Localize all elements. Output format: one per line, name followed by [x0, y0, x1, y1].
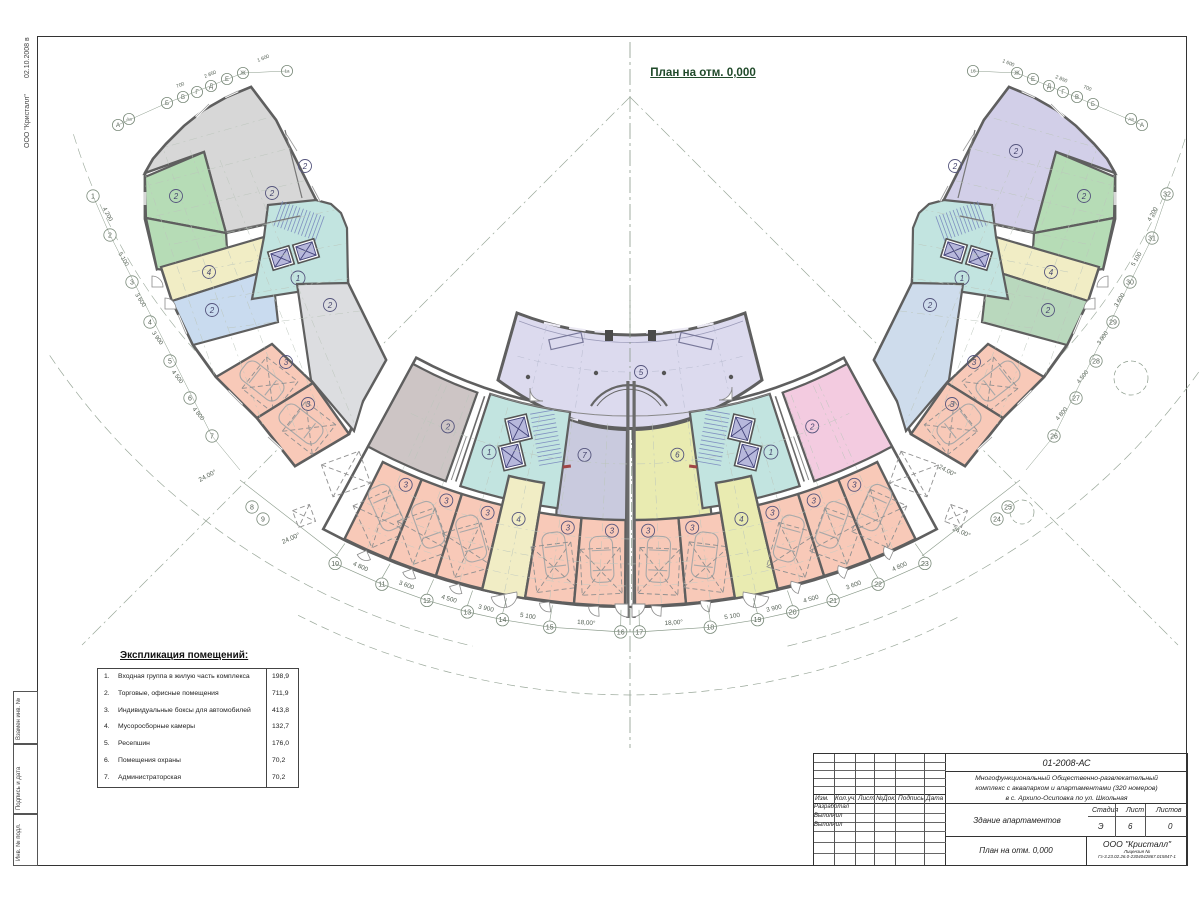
svg-text:16: 16 — [617, 630, 625, 637]
svg-text:4: 4 — [739, 515, 744, 524]
svg-text:3: 3 — [852, 481, 857, 490]
svg-text:29: 29 — [1109, 320, 1117, 327]
svg-text:3: 3 — [403, 481, 408, 490]
svg-text:1: 1 — [960, 274, 964, 283]
svg-text:700: 700 — [1082, 84, 1092, 93]
svg-text:5: 5 — [639, 368, 644, 377]
svg-text:1 600: 1 600 — [257, 54, 271, 64]
svg-text:18,00°: 18,00° — [577, 618, 596, 627]
svg-text:Ж: Ж — [240, 71, 246, 77]
svg-text:А: А — [1140, 123, 1144, 129]
svg-text:2: 2 — [269, 189, 275, 198]
svg-text:5: 5 — [168, 359, 172, 366]
svg-text:30: 30 — [1126, 280, 1134, 287]
svg-text:2: 2 — [1081, 192, 1087, 201]
svg-text:5 100: 5 100 — [724, 612, 741, 621]
svg-text:7: 7 — [582, 451, 587, 460]
svg-text:2: 2 — [209, 306, 215, 315]
svg-text:3: 3 — [972, 358, 977, 367]
svg-text:4 500: 4 500 — [440, 594, 458, 605]
svg-text:17: 17 — [635, 630, 643, 637]
svg-text:1: 1 — [487, 448, 491, 457]
svg-text:4 800: 4 800 — [191, 407, 206, 423]
svg-text:3: 3 — [485, 509, 490, 518]
svg-text:2: 2 — [952, 162, 958, 171]
svg-text:5 100: 5 100 — [117, 251, 130, 268]
svg-text:3 900: 3 900 — [766, 603, 783, 613]
svg-text:2: 2 — [108, 233, 112, 240]
svg-text:3: 3 — [811, 496, 816, 505]
svg-text:18: 18 — [706, 625, 714, 632]
svg-text:Е: Е — [225, 77, 229, 83]
svg-text:6: 6 — [188, 396, 192, 403]
svg-text:5 100: 5 100 — [520, 612, 537, 621]
svg-text:19: 19 — [754, 617, 762, 624]
svg-text:Б: Б — [165, 101, 169, 107]
svg-text:15: 15 — [546, 625, 554, 632]
svg-text:2: 2 — [173, 192, 179, 201]
svg-text:Аа: Аа — [1128, 117, 1134, 122]
svg-text:3: 3 — [610, 527, 615, 536]
svg-text:4 500: 4 500 — [170, 370, 184, 386]
svg-text:Б: Б — [1091, 102, 1095, 108]
svg-text:1: 1 — [296, 274, 300, 283]
svg-text:4 500: 4 500 — [802, 594, 820, 605]
svg-text:2: 2 — [1013, 147, 1019, 156]
svg-text:3: 3 — [770, 509, 775, 518]
svg-text:4 200: 4 200 — [1147, 206, 1160, 223]
svg-text:2: 2 — [927, 301, 933, 310]
svg-text:Д: Д — [1047, 84, 1051, 90]
svg-text:6: 6 — [675, 451, 680, 460]
svg-text:24.00°: 24.00° — [281, 531, 302, 546]
svg-text:13: 13 — [463, 609, 471, 616]
svg-text:2: 2 — [302, 162, 308, 171]
svg-text:3 900: 3 900 — [1096, 330, 1110, 346]
svg-text:24: 24 — [993, 517, 1001, 524]
svg-text:1 600: 1 600 — [1001, 58, 1015, 68]
svg-text:7: 7 — [210, 434, 214, 441]
svg-text:20: 20 — [789, 609, 797, 616]
svg-text:4: 4 — [207, 268, 212, 277]
svg-text:4: 4 — [148, 320, 152, 327]
svg-text:2: 2 — [1045, 306, 1051, 315]
svg-text:3 900: 3 900 — [477, 603, 494, 613]
svg-text:700: 700 — [176, 81, 186, 90]
svg-text:3 900: 3 900 — [150, 331, 164, 347]
svg-text:2: 2 — [327, 301, 333, 310]
svg-text:3 600: 3 600 — [1114, 292, 1127, 308]
svg-text:8: 8 — [250, 505, 254, 512]
svg-text:24.00°: 24.00° — [197, 468, 218, 484]
svg-text:3: 3 — [130, 280, 134, 287]
svg-text:31: 31 — [1148, 236, 1156, 243]
svg-text:28: 28 — [1092, 359, 1100, 366]
svg-text:3 600: 3 600 — [845, 579, 863, 591]
svg-text:18,00°: 18,00° — [664, 618, 683, 627]
svg-text:1: 1 — [769, 448, 773, 457]
svg-text:3 600: 3 600 — [398, 580, 416, 592]
svg-text:4 200: 4 200 — [101, 206, 114, 223]
svg-text:24.00°: 24.00° — [937, 463, 958, 479]
svg-text:3: 3 — [690, 524, 695, 533]
svg-text:2: 2 — [809, 422, 815, 431]
svg-text:14: 14 — [499, 617, 507, 624]
svg-text:2: 2 — [445, 422, 451, 431]
svg-text:5 100: 5 100 — [1131, 251, 1144, 268]
svg-text:3: 3 — [444, 496, 449, 505]
svg-text:3: 3 — [284, 358, 289, 367]
svg-text:32: 32 — [1163, 192, 1171, 199]
svg-text:9: 9 — [261, 517, 265, 524]
svg-text:3: 3 — [566, 524, 571, 533]
svg-text:2 850: 2 850 — [204, 70, 218, 80]
svg-text:3 600: 3 600 — [133, 293, 146, 309]
svg-text:2 850: 2 850 — [1054, 74, 1068, 84]
svg-text:3: 3 — [646, 527, 651, 536]
